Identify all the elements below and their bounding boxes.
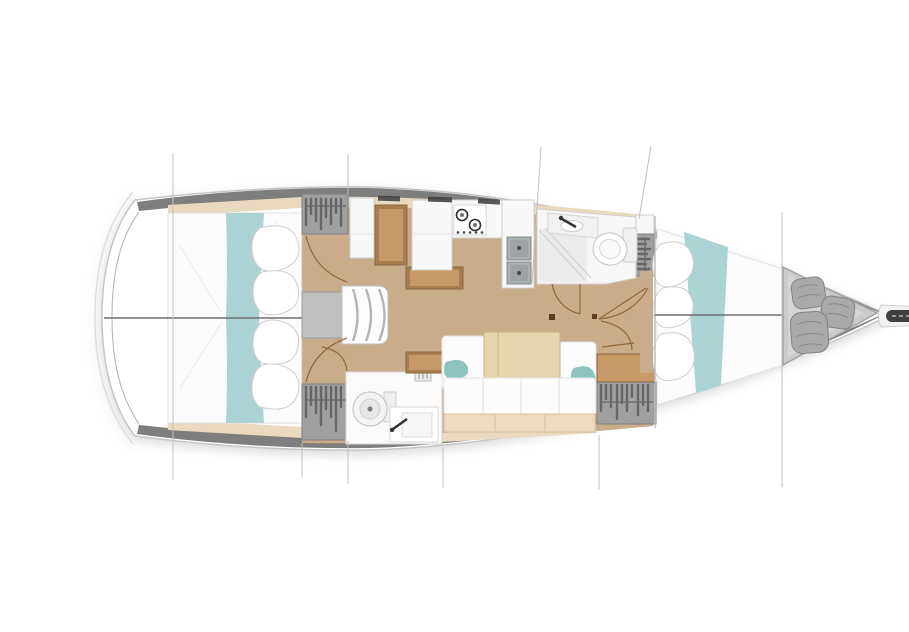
sail-locker bbox=[783, 267, 877, 365]
aft-cabin-starboard bbox=[168, 318, 302, 423]
forward-cabin bbox=[640, 216, 783, 428]
nav-seat-top bbox=[410, 270, 459, 286]
wardrobe-saloon bbox=[597, 382, 656, 424]
hanging-locker-aft-bottom bbox=[302, 384, 348, 440]
post bbox=[592, 314, 597, 319]
settee-base bbox=[444, 414, 595, 432]
anchor-roller bbox=[886, 310, 909, 322]
hanging-locker-aft-top bbox=[302, 194, 348, 234]
pillow bbox=[253, 320, 299, 364]
washbasin bbox=[402, 413, 432, 437]
double-sink bbox=[507, 237, 531, 284]
aft-cabin-port bbox=[168, 213, 302, 318]
floor-plan-drawing bbox=[40, 16, 909, 616]
chart-table-top bbox=[379, 209, 403, 261]
companionway bbox=[302, 286, 388, 344]
head-shelf-top bbox=[409, 355, 443, 370]
pillow bbox=[253, 271, 299, 315]
pillow bbox=[252, 226, 299, 272]
fender bbox=[790, 276, 827, 310]
hanging-locker-head bbox=[636, 215, 654, 276]
head-forward bbox=[537, 209, 637, 284]
mast-post bbox=[549, 314, 555, 320]
yacht-floor-plan: Sailing yacht interior layout plan — top… bbox=[40, 16, 909, 616]
pillow bbox=[653, 287, 693, 328]
settee-seats bbox=[444, 378, 596, 415]
saloon-table bbox=[484, 332, 560, 378]
cabin-sole-strip bbox=[640, 271, 653, 373]
nav-cabinet bbox=[350, 198, 374, 258]
faucet-base bbox=[559, 216, 563, 220]
teal-cushion bbox=[444, 360, 468, 379]
fridge-counter bbox=[412, 200, 452, 270]
engine-box bbox=[302, 292, 348, 338]
bowsprit bbox=[879, 305, 909, 327]
fender bbox=[790, 311, 830, 354]
toilet bbox=[353, 392, 387, 426]
faucet-base bbox=[390, 428, 394, 432]
pillow bbox=[653, 333, 695, 381]
burner-center bbox=[473, 223, 477, 227]
burner-center bbox=[460, 213, 464, 217]
pillow bbox=[252, 364, 299, 410]
